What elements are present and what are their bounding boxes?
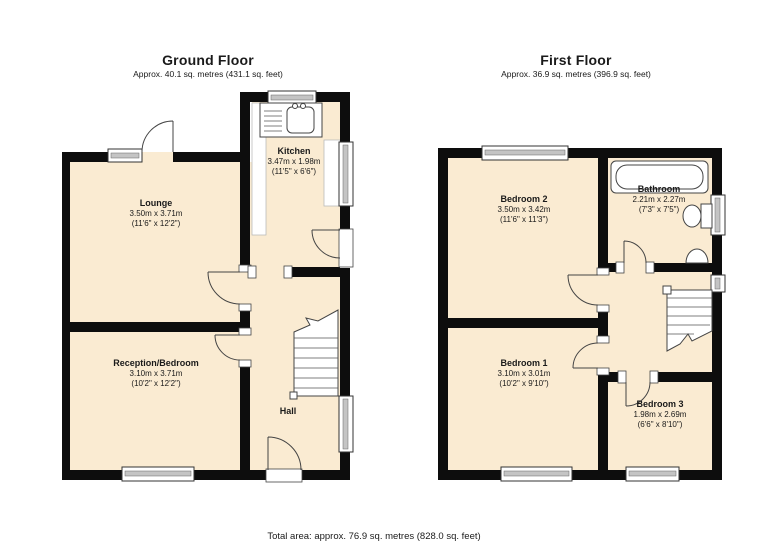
kitchen-counter-right bbox=[324, 140, 340, 206]
room-dimensions-metric: 1.98m x 2.69m bbox=[634, 410, 687, 420]
room-dimensions-imperial: (11'6" x 12'2") bbox=[130, 219, 183, 229]
first-floor-subtitle: Approx. 36.9 sq. metres (396.9 sq. feet) bbox=[501, 69, 651, 79]
room-label-bedroom1: Bedroom 1 3.10m x 3.01m (10'2" x 9'10") bbox=[498, 358, 551, 389]
room-name: Bedroom 3 bbox=[634, 399, 687, 410]
room-dimensions-metric: 3.47m x 1.98m bbox=[268, 157, 321, 167]
room-name: Lounge bbox=[130, 198, 183, 209]
room-dimensions-metric: 3.10m x 3.01m bbox=[498, 369, 551, 379]
room-label-bedroom2: Bedroom 2 3.50m x 3.42m (11'6" x 11'3") bbox=[498, 194, 551, 225]
room-label-reception-bedroom: Reception/Bedroom 3.10m x 3.71m (10'2" x… bbox=[113, 358, 199, 389]
room-dimensions-metric: 3.10m x 3.71m bbox=[113, 369, 199, 379]
room-dimensions-imperial: (10'2" x 9'10") bbox=[498, 379, 551, 389]
landing-window bbox=[711, 275, 725, 292]
front-door-threshold bbox=[266, 469, 302, 482]
room-name: Bathroom bbox=[633, 184, 686, 195]
room-dimensions-imperial: (7'3" x 7'5") bbox=[633, 205, 686, 215]
bathroom-window bbox=[711, 195, 725, 235]
kitchen-top-window bbox=[268, 91, 316, 104]
newel-post bbox=[663, 286, 671, 294]
room-label-kitchen: Kitchen 3.47m x 1.98m (11'5" x 6'6") bbox=[268, 146, 321, 177]
room-name: Hall bbox=[280, 406, 297, 416]
tap-icon bbox=[301, 104, 306, 109]
floorplan-canvas: Ground Floor Approx. 40.1 sq. metres (43… bbox=[0, 0, 768, 558]
room-label-bedroom3: Bedroom 3 1.98m x 2.69m (6'6" x 8'10") bbox=[634, 399, 687, 430]
hall-side-window bbox=[339, 396, 353, 452]
room-dimensions-imperial: (6'6" x 8'10") bbox=[634, 420, 687, 430]
room-label-hall: Hall bbox=[280, 406, 297, 416]
ground-floor-title: Ground Floor bbox=[162, 52, 254, 68]
room-dimensions-metric: 2.21m x 2.27m bbox=[633, 195, 686, 205]
kitchen-sink-unit bbox=[260, 103, 322, 137]
floorplan-drawing bbox=[0, 0, 768, 558]
room-dimensions-metric: 3.50m x 3.42m bbox=[498, 205, 551, 215]
room-dimensions-metric: 3.50m x 3.71m bbox=[130, 209, 183, 219]
room-name: Bedroom 2 bbox=[498, 194, 551, 205]
reception-window bbox=[122, 467, 194, 481]
back-door-threshold bbox=[339, 229, 353, 267]
tap-icon bbox=[293, 104, 298, 109]
room-name: Bedroom 1 bbox=[498, 358, 551, 369]
sink-basin-icon bbox=[287, 107, 314, 133]
bedroom3-window bbox=[626, 467, 679, 481]
room-name: Reception/Bedroom bbox=[113, 358, 199, 369]
bedroom1-window bbox=[501, 467, 572, 481]
room-dimensions-imperial: (10'2" x 12'2") bbox=[113, 379, 199, 389]
newel-post bbox=[290, 392, 297, 399]
bedroom2-window bbox=[482, 146, 568, 160]
ground-floor-area bbox=[70, 162, 340, 470]
total-area-text: Total area: approx. 76.9 sq. metres (828… bbox=[267, 531, 480, 542]
first-floor-title: First Floor bbox=[540, 52, 611, 68]
room-label-lounge: Lounge 3.50m x 3.71m (11'6" x 12'2") bbox=[130, 198, 183, 229]
room-dimensions-imperial: (11'5" x 6'6") bbox=[268, 167, 321, 177]
room-label-bathroom: Bathroom 2.21m x 2.27m (7'3" x 7'5") bbox=[633, 184, 686, 215]
room-name: Kitchen bbox=[268, 146, 321, 157]
room-dimensions-imperial: (11'6" x 11'3") bbox=[498, 215, 551, 225]
lounge-window bbox=[108, 149, 142, 162]
ground-floor-subtitle: Approx. 40.1 sq. metres (431.1 sq. feet) bbox=[133, 69, 283, 79]
toilet-icon bbox=[683, 204, 712, 228]
lounge-door-opening bbox=[142, 152, 173, 162]
lounge-exterior-door bbox=[142, 121, 173, 152]
kitchen-side-window bbox=[339, 142, 353, 206]
